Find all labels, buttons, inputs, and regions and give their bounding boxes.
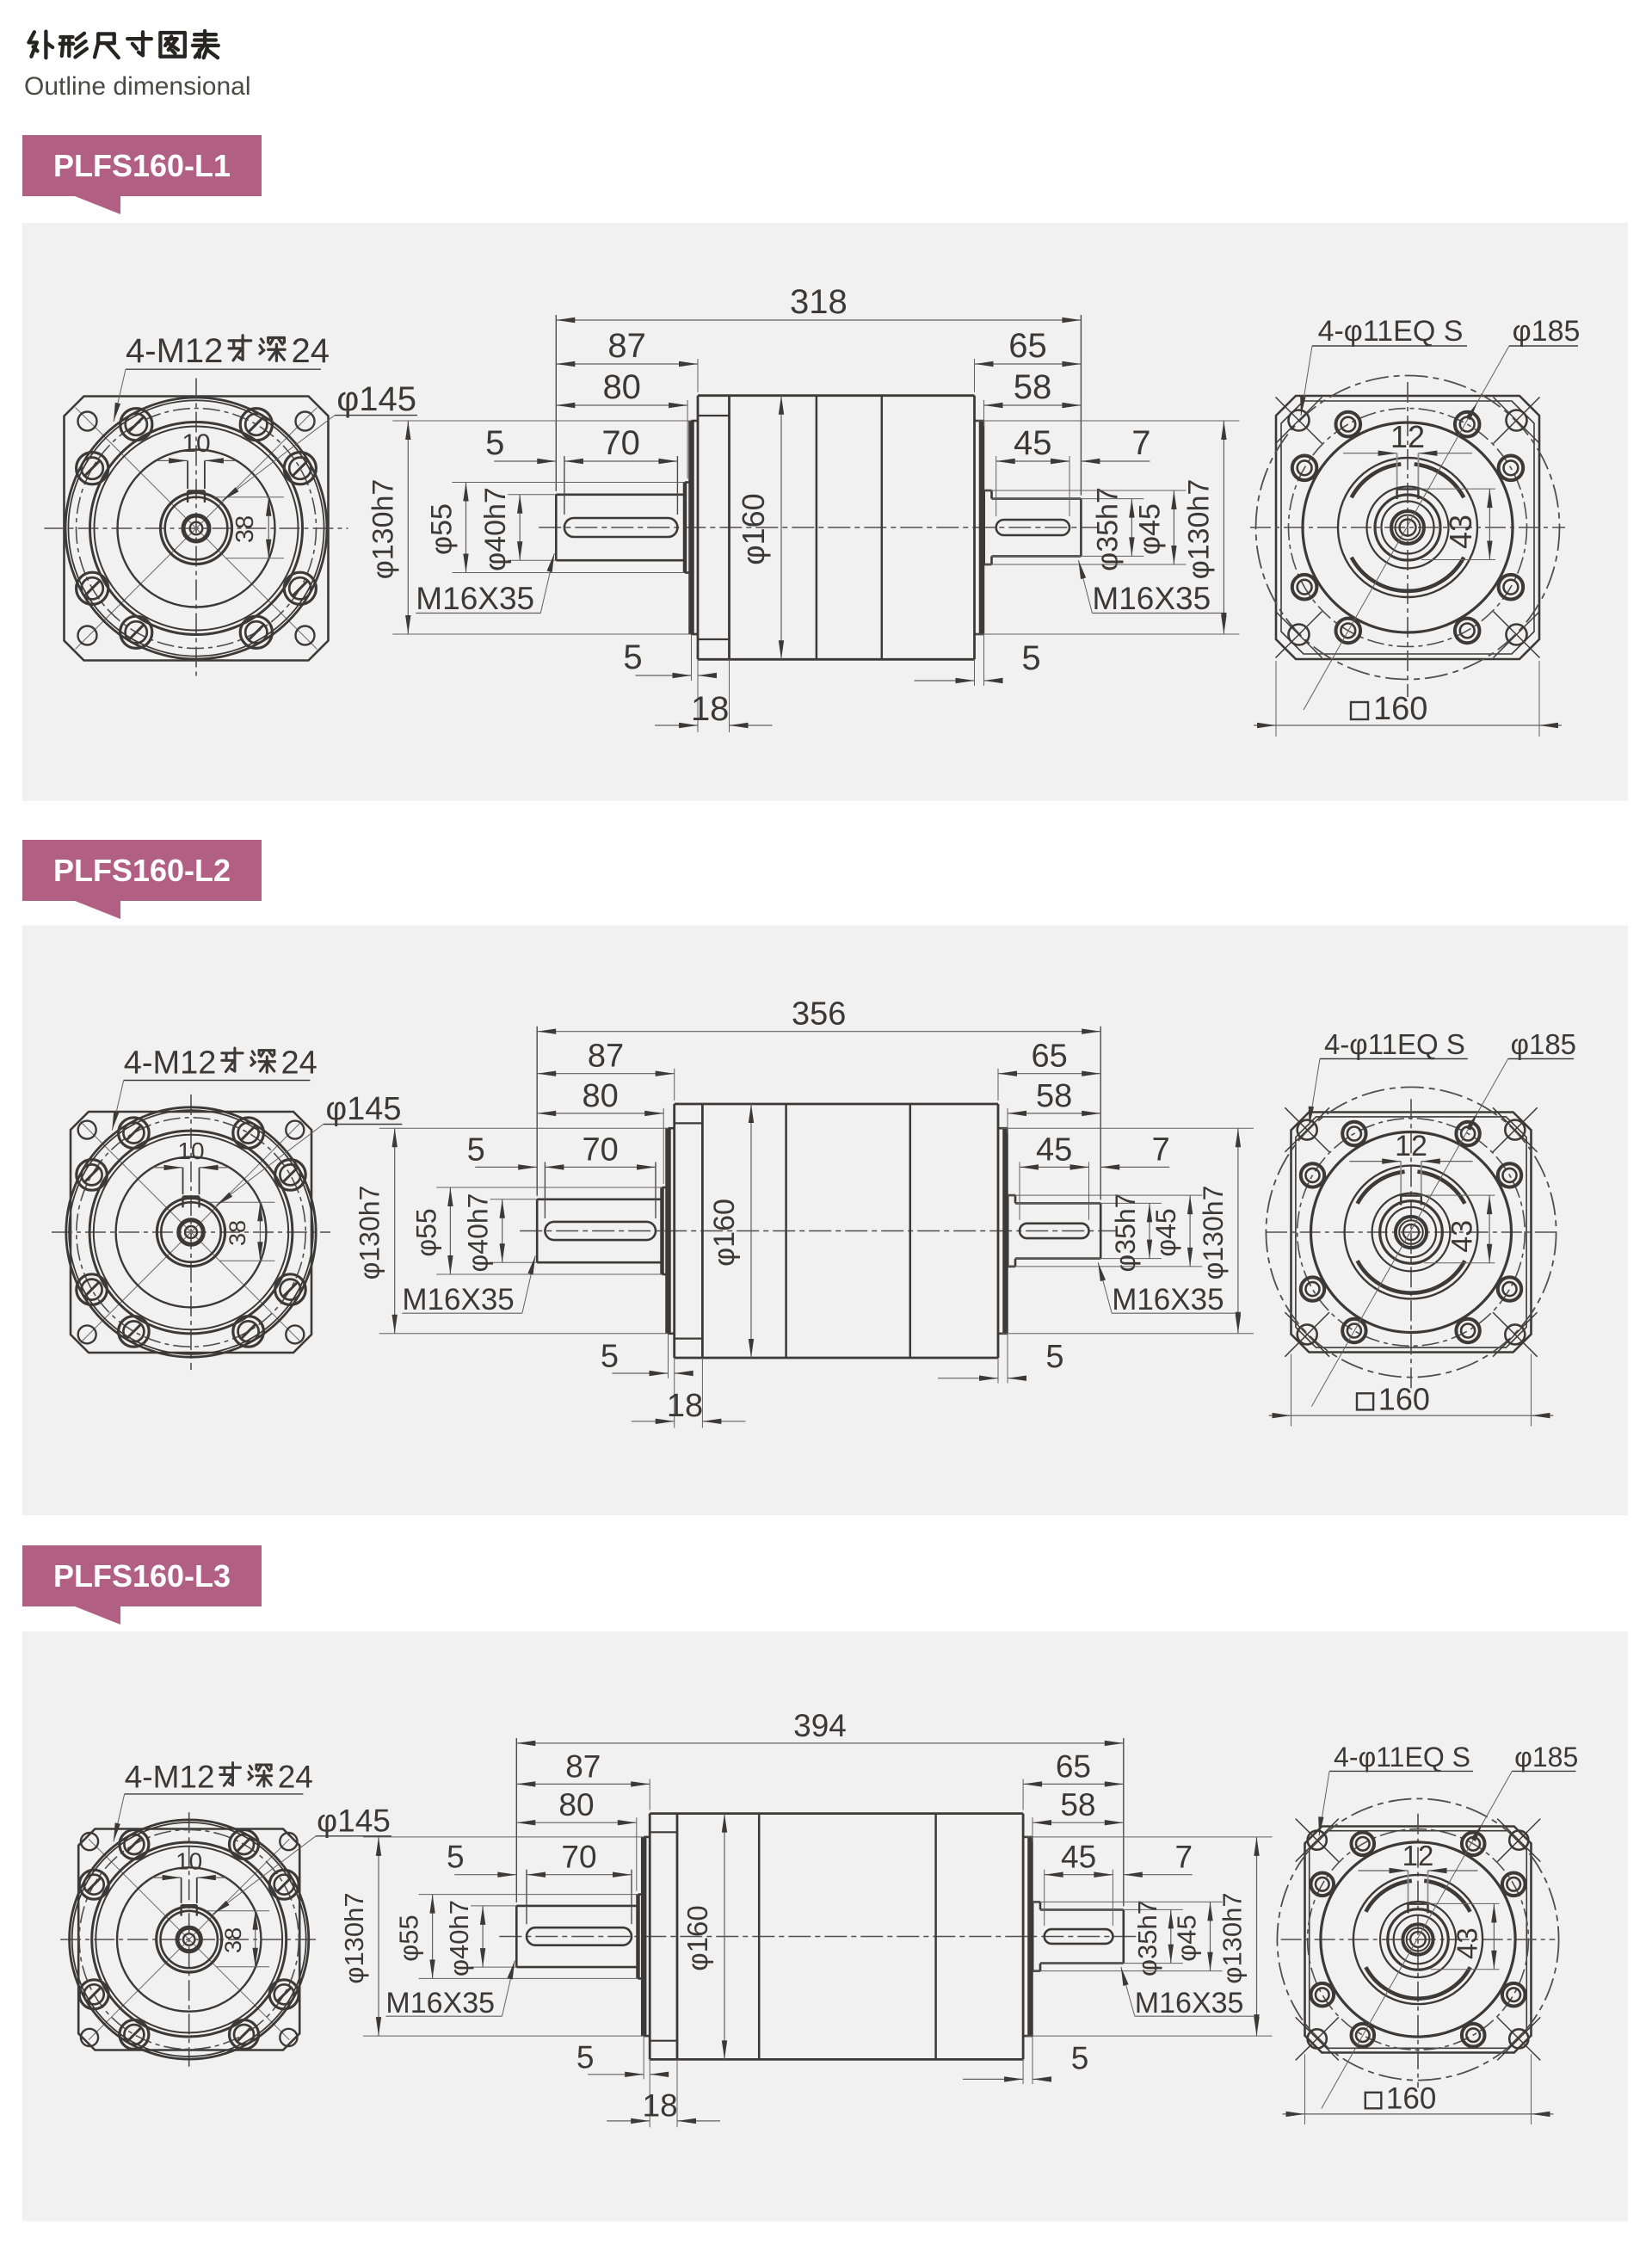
- svg-text:5: 5: [623, 638, 642, 676]
- svg-text:65: 65: [1056, 1748, 1091, 1784]
- svg-text:18: 18: [643, 2087, 678, 2123]
- svg-text:10: 10: [176, 1848, 202, 1875]
- svg-text:160: 160: [1373, 691, 1427, 727]
- svg-text:φ35h7: φ35h7: [1091, 487, 1124, 571]
- svg-text:65: 65: [1031, 1039, 1067, 1075]
- svg-text:394: 394: [793, 1708, 847, 1743]
- svg-text:4-φ11EQ S: 4-φ11EQ S: [1318, 315, 1464, 348]
- svg-text:M16X35: M16X35: [402, 1283, 514, 1316]
- svg-text:5: 5: [576, 2039, 595, 2075]
- svg-text:38: 38: [225, 1220, 250, 1246]
- svg-text:5: 5: [1045, 1339, 1063, 1375]
- svg-text:φ40h7: φ40h7: [479, 487, 512, 571]
- svg-text:4-φ11EQ S: 4-φ11EQ S: [1324, 1028, 1465, 1060]
- svg-text:5: 5: [1071, 2040, 1089, 2075]
- svg-text:φ40h7: φ40h7: [463, 1193, 494, 1273]
- svg-text:PLFS160-L2: PLFS160-L2: [53, 853, 231, 888]
- svg-text:M16X35: M16X35: [416, 581, 534, 616]
- svg-text:4-M12: 4-M12: [126, 332, 223, 370]
- svg-text:65: 65: [1008, 327, 1047, 365]
- svg-text:φ145: φ145: [317, 1804, 391, 1839]
- svg-text:356: 356: [792, 996, 846, 1033]
- svg-text:5: 5: [467, 1131, 485, 1168]
- svg-text:5: 5: [1021, 639, 1040, 677]
- svg-text:M16X35: M16X35: [1135, 1987, 1244, 2019]
- svg-text:160: 160: [1386, 2081, 1436, 2115]
- svg-text:80: 80: [558, 1787, 594, 1822]
- svg-text:φ130h7: φ130h7: [367, 479, 399, 580]
- svg-text:87: 87: [565, 1748, 601, 1784]
- svg-text:45: 45: [1061, 1840, 1096, 1875]
- svg-text:80: 80: [602, 368, 641, 406]
- svg-text:70: 70: [561, 1840, 596, 1875]
- svg-text:7: 7: [1152, 1131, 1170, 1168]
- svg-text:12: 12: [1402, 1840, 1434, 1871]
- svg-text:φ55: φ55: [426, 503, 459, 555]
- svg-text:43: 43: [1452, 1927, 1483, 1959]
- svg-text:45: 45: [1036, 1131, 1072, 1168]
- svg-text:10: 10: [177, 1138, 204, 1164]
- svg-text:φ160: φ160: [708, 1199, 741, 1267]
- svg-text:M16X35: M16X35: [385, 1987, 495, 2019]
- svg-text:18: 18: [667, 1388, 703, 1424]
- svg-text:φ130h7: φ130h7: [1182, 479, 1215, 580]
- svg-text:43: 43: [1446, 1220, 1479, 1253]
- svg-text:24: 24: [278, 1759, 313, 1794]
- svg-text:24: 24: [292, 332, 330, 370]
- svg-text:PLFS160-L3: PLFS160-L3: [53, 1558, 231, 1594]
- svg-text:87: 87: [588, 1039, 624, 1075]
- svg-text:45: 45: [1014, 424, 1052, 462]
- svg-text:38: 38: [231, 515, 259, 543]
- svg-text:18: 18: [691, 690, 730, 728]
- svg-text:φ55: φ55: [394, 1915, 424, 1962]
- svg-text:4-M12: 4-M12: [125, 1759, 215, 1794]
- svg-text:φ185: φ185: [1511, 1028, 1576, 1060]
- svg-text:PLFS160-L1: PLFS160-L1: [53, 148, 231, 183]
- svg-text:43: 43: [1443, 515, 1478, 549]
- svg-text:φ35h7: φ35h7: [1132, 1900, 1162, 1976]
- svg-text:φ185: φ185: [1514, 1742, 1578, 1773]
- svg-text:φ130h7: φ130h7: [1198, 1186, 1229, 1280]
- svg-text:87: 87: [607, 327, 646, 365]
- svg-text:φ145: φ145: [336, 380, 416, 418]
- svg-text:φ130h7: φ130h7: [339, 1892, 369, 1983]
- svg-text:10: 10: [182, 429, 210, 458]
- svg-text:12: 12: [1395, 1130, 1427, 1162]
- svg-text:φ40h7: φ40h7: [444, 1900, 474, 1976]
- svg-text:φ35h7: φ35h7: [1110, 1193, 1141, 1273]
- svg-text:Outline dimensional: Outline dimensional: [24, 72, 250, 101]
- svg-text:5: 5: [601, 1338, 619, 1374]
- svg-text:φ130h7: φ130h7: [1217, 1892, 1248, 1983]
- svg-text:80: 80: [583, 1078, 619, 1114]
- svg-text:φ130h7: φ130h7: [354, 1186, 385, 1280]
- svg-text:7: 7: [1131, 424, 1150, 462]
- svg-text:φ45: φ45: [1133, 503, 1166, 555]
- svg-text:7: 7: [1175, 1840, 1193, 1875]
- svg-text:318: 318: [790, 283, 848, 321]
- svg-text:φ160: φ160: [736, 493, 771, 564]
- svg-text:φ160: φ160: [681, 1905, 713, 1970]
- svg-text:φ45: φ45: [1172, 1915, 1202, 1962]
- svg-text:38: 38: [220, 1927, 246, 1953]
- svg-text:M16X35: M16X35: [1112, 1283, 1224, 1316]
- svg-text:160: 160: [1378, 1381, 1430, 1416]
- svg-text:5: 5: [447, 1840, 465, 1875]
- svg-text:φ45: φ45: [1150, 1208, 1181, 1256]
- svg-text:M16X35: M16X35: [1092, 581, 1211, 616]
- svg-text:58: 58: [1060, 1787, 1095, 1822]
- svg-text:φ55: φ55: [410, 1208, 441, 1256]
- svg-text:70: 70: [601, 424, 640, 462]
- svg-text:70: 70: [583, 1131, 619, 1168]
- svg-text:58: 58: [1036, 1078, 1072, 1114]
- svg-text:12: 12: [1390, 419, 1425, 454]
- svg-text:4-φ11EQ S: 4-φ11EQ S: [1334, 1742, 1470, 1773]
- svg-text:φ145: φ145: [325, 1091, 401, 1127]
- svg-text:4-M12: 4-M12: [124, 1045, 217, 1082]
- svg-text:58: 58: [1014, 368, 1052, 406]
- svg-text:24: 24: [281, 1045, 317, 1082]
- svg-text:5: 5: [485, 424, 504, 462]
- svg-text:φ185: φ185: [1513, 315, 1581, 348]
